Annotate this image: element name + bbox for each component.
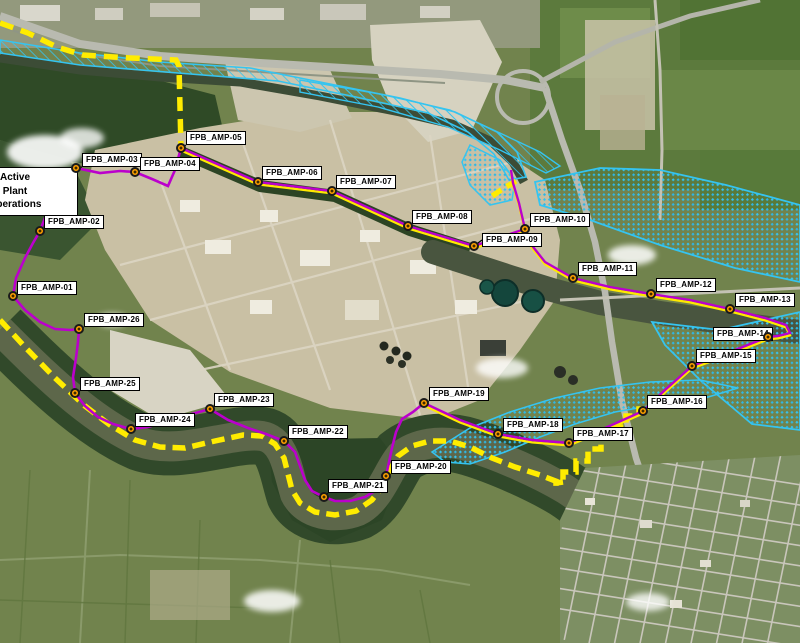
active-plant-operations-callout: Active Plant Operations <box>0 167 78 216</box>
callout-line: Active <box>0 171 77 185</box>
amp-marker[interactable] <box>568 273 578 283</box>
amp-marker[interactable] <box>70 388 80 398</box>
amp-label: FPB_AMP-17 <box>573 427 633 441</box>
amp-marker[interactable] <box>763 332 773 342</box>
amp-marker[interactable] <box>319 492 329 502</box>
amp-label: FPB_AMP-19 <box>429 387 489 401</box>
amp-marker[interactable] <box>253 177 263 187</box>
amp-marker[interactable] <box>205 404 215 414</box>
amp-marker[interactable] <box>725 304 735 314</box>
amp-label: FPB_AMP-15 <box>696 349 756 363</box>
amp-label: FPB_AMP-12 <box>656 278 716 292</box>
amp-marker[interactable] <box>403 221 413 231</box>
amp-marker[interactable] <box>638 406 648 416</box>
amp-label: FPB_AMP-18 <box>503 418 563 432</box>
amp-marker[interactable] <box>493 429 503 439</box>
amp-label: FPB_AMP-11 <box>578 262 637 276</box>
amp-marker[interactable] <box>327 186 337 196</box>
amp-label: FPB_AMP-22 <box>288 425 348 439</box>
amp-label: FPB_AMP-05 <box>186 131 246 145</box>
amp-label: FPB_AMP-23 <box>214 393 274 407</box>
amp-marker[interactable] <box>130 167 140 177</box>
amp-marker[interactable] <box>520 224 530 234</box>
hatched-strip-north-2 <box>300 80 560 173</box>
amp-marker[interactable] <box>419 398 429 408</box>
amp-marker[interactable] <box>564 438 574 448</box>
amp-label: FPB_AMP-13 <box>735 293 795 307</box>
amp-label: FPB_AMP-08 <box>412 210 472 224</box>
amp-label: FPB_AMP-25 <box>80 377 140 391</box>
amp-label: FPB_AMP-07 <box>336 175 396 189</box>
amp-marker[interactable] <box>8 291 18 301</box>
amp-marker[interactable] <box>381 471 391 481</box>
callout-line: Operations <box>0 198 77 212</box>
map-canvas[interactable]: Active Plant Operations FPB_AMP-01FPB_AM… <box>0 0 800 643</box>
amp-marker[interactable] <box>35 226 45 236</box>
amp-marker[interactable] <box>469 241 479 251</box>
amp-label: FPB_AMP-03 <box>82 153 142 167</box>
amp-marker[interactable] <box>176 143 186 153</box>
amp-label: FPB_AMP-20 <box>391 460 451 474</box>
amp-label: FPB_AMP-26 <box>84 313 144 327</box>
callout-line: Plant <box>0 185 77 199</box>
amp-marker[interactable] <box>71 163 81 173</box>
amp-label: FPB_AMP-09 <box>482 233 542 247</box>
yellow-boundary-stair-spur <box>556 482 563 489</box>
amp-label: FPB_AMP-04 <box>140 157 200 171</box>
amp-marker[interactable] <box>646 289 656 299</box>
amp-label: FPB_AMP-02 <box>44 215 104 229</box>
amp-label: FPB_AMP-10 <box>530 213 590 227</box>
amp-marker[interactable] <box>279 436 289 446</box>
amp-label: FPB_AMP-24 <box>135 413 195 427</box>
amp-label: FPB_AMP-21 <box>328 479 388 493</box>
amp-marker[interactable] <box>74 324 84 334</box>
amp-marker[interactable] <box>126 424 136 434</box>
amp-label: FPB_AMP-01 <box>17 281 77 295</box>
amp-marker[interactable] <box>687 361 697 371</box>
amp-label: FPB_AMP-06 <box>262 166 322 180</box>
amp-label: FPB_AMP-16 <box>647 395 707 409</box>
